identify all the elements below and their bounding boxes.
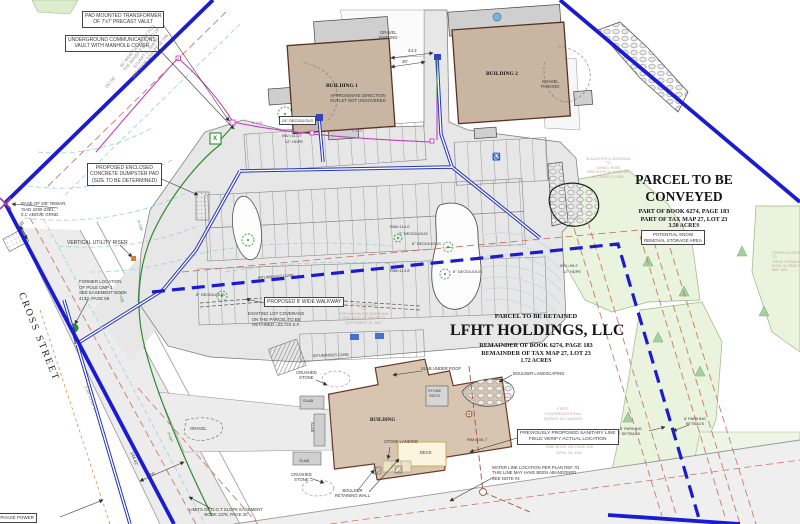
invert-label: INV.=113.7' xyxy=(282,133,302,138)
rebar-note: BASE OF 5/8" REBAR, 'GAD 2290-2391', 0.1… xyxy=(21,201,66,218)
tree-label: 8" DECIDUOUS xyxy=(196,292,225,297)
gravel-parking-label: GRAVELPARKING xyxy=(379,30,398,41)
parcel-retained-block: PARCEL TO BE RETAINED LFHT HOLDINGS, LLC… xyxy=(450,313,622,365)
slab-label: SLAB xyxy=(303,398,313,403)
invert-label: INV.=99.2' xyxy=(560,263,578,268)
stone-landing-label: STONE LANDING xyxy=(384,439,418,444)
tree-label: 8" DECIDUOUS xyxy=(412,241,441,246)
slab-label: SLAB xyxy=(310,422,315,432)
building2-label: BUILDING 2 xyxy=(486,71,518,78)
deed-note-upham: JETER UPHAMTO JOB WASHBURN INGRAHAMWBK B… xyxy=(339,303,388,325)
parking-setback-label: 8' PARKINGSETBACK xyxy=(620,426,642,436)
parking-setback-label: 8' PARKINGSETBACK xyxy=(684,416,706,426)
electric-line-label: E-U/G xyxy=(252,121,263,126)
electric-line-label: E-U/G xyxy=(352,129,363,134)
transformer-x-label: X xyxy=(213,136,217,144)
water-line-note: WATER LINE LOCATION PER PLAN REF. #1 THI… xyxy=(492,465,580,481)
utility-riser-marker xyxy=(131,256,136,261)
handicap-icon: ♿ xyxy=(492,154,501,163)
gravel-parking-label-2: GRAVELPARKING xyxy=(541,79,560,90)
stone-patio-label: STONEPATIO xyxy=(428,389,441,398)
tree-label-24: 24" DECIDUOUS xyxy=(279,116,316,125)
deed-note-congregational: FIRST CONGREGATIONAL PARISH IN CAMDEN xyxy=(528,406,598,421)
building1-label: BUILDING 1 xyxy=(326,83,358,90)
lot-coverage-note: EXISTING LOT COVERAGE ON THE PARCEL TO B… xyxy=(248,311,304,328)
callout-snow-storage: POTENTIAL SNOWREMOVAL STORAGE AREA xyxy=(641,230,705,245)
boulder-wall-label: BOULDERRETAINING WALL xyxy=(335,488,370,499)
rim-label: RIM=114.0' xyxy=(390,224,410,229)
tree-label: 2" DECIDUOUS xyxy=(399,231,428,236)
callout-dumpster: PROPOSED ENCLOSED CONCRETE DUMPSTER PAD … xyxy=(87,163,162,186)
slab-label: SLAB xyxy=(299,458,309,463)
tree-label: 6" DECIDUOUS xyxy=(453,269,482,274)
deed-note-joseph: JOSEPHUS ROSETO JOB W. INGRAHAMBOOK 34, … xyxy=(772,251,800,272)
painted-stall-marker xyxy=(350,334,359,340)
painted-stall-marker xyxy=(375,333,384,339)
dim-441: 44.1' xyxy=(408,48,417,54)
dumpster-pad xyxy=(196,192,209,220)
manhole xyxy=(480,489,487,496)
rim-label: RIM=106.7' xyxy=(467,437,487,442)
crushed-stone-label: CRUSHEDSTONE xyxy=(296,370,317,381)
deed-note-slaughter: SLAUGHTER & INGRAHAMTO JOHN D. ROSEWBK B… xyxy=(586,157,631,179)
gravel-label: GRAVEL xyxy=(190,426,207,431)
outlet-note: APPROXIMATE DIRECTIONOUTLET NOT UNCOVERE… xyxy=(330,93,386,104)
catch-basin xyxy=(493,13,501,21)
deed-note-congregational-date: APRIL 28, 1941 xyxy=(556,451,583,456)
dot-easement-note: LIMITS OF D.O.T SLOPE EASEMENTBOOK 1378,… xyxy=(189,507,263,518)
plan-linework xyxy=(0,0,800,524)
dim-30: 30' xyxy=(402,59,408,65)
utility-riser-note: VERTICAL UTILITY RISER xyxy=(67,240,128,246)
pipe-label: 12" HDPE xyxy=(285,139,303,144)
callout-phase-power: E TO 3 PHASE POWER xyxy=(0,513,37,523)
deck-label: DECK xyxy=(420,450,432,455)
building-label: BUILDING xyxy=(370,418,395,424)
slab-under-roof-label: SLAB UNDER ROOF xyxy=(421,366,461,371)
site-plan-drawing: PAD MOUNTED TRANSFORMER OF 7'x7' PRECAST… xyxy=(0,0,800,524)
callout-walkway: PROPOSED 8' WIDE WALKWAY xyxy=(264,297,344,307)
rim-label: RIM=113.5' xyxy=(390,268,410,273)
parcel-title: PARCEL TO BE xyxy=(626,172,742,189)
pipe-label: 12" HDPE xyxy=(563,269,581,274)
boulder-landscaping-label: BOULDER LANDSCAPING xyxy=(513,371,564,376)
callout-sanitary: PREVIOUSLY PROPOSED SANITARY LINEFIELD V… xyxy=(517,429,619,445)
deed-note-congregational-ref: WBK BOOK 492 PAGE 298 xyxy=(546,445,593,450)
owner-name: LFHT HOLDINGS, LLC xyxy=(450,321,622,341)
parcel-title: CONVEYED xyxy=(626,189,742,206)
parcel-conveyed-block: PARCEL TO BE CONVEYED PART OF BOOK 6274,… xyxy=(626,172,742,230)
crushed-stone-label: CRUSHEDSTONE xyxy=(291,472,312,483)
